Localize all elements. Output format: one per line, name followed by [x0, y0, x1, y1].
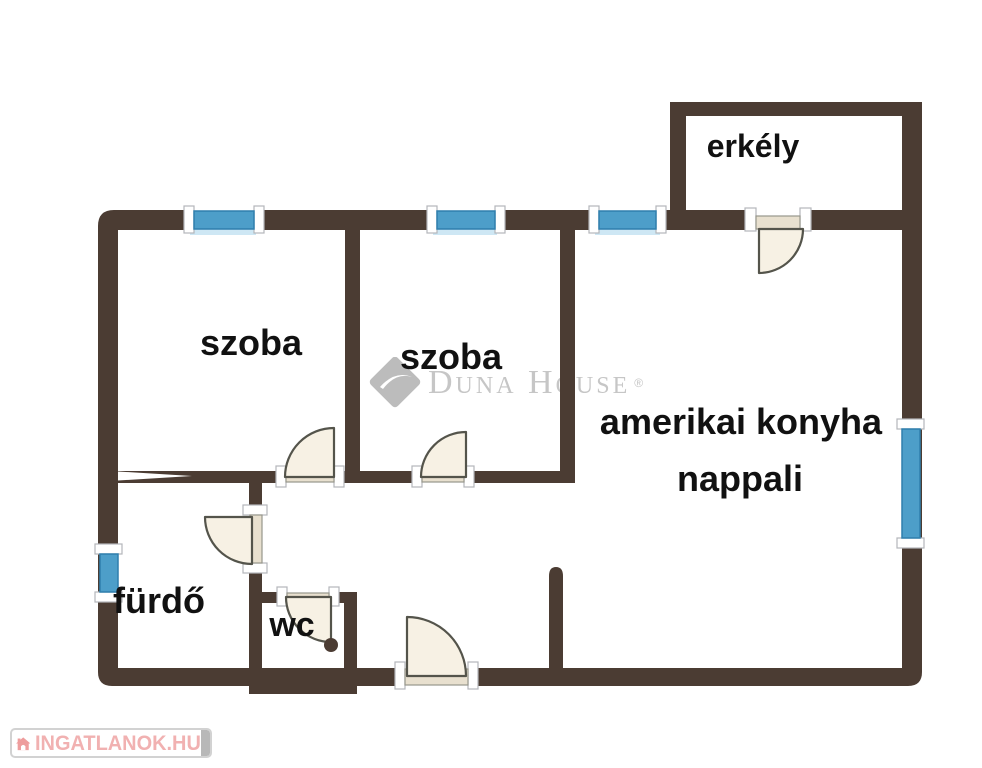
door-room1 [276, 428, 344, 487]
window-living-top [589, 206, 666, 235]
room-label-living-line2: nappali [677, 461, 803, 497]
room-label-room2: szoba [400, 339, 502, 375]
room-label-toilet: wc [269, 608, 314, 642]
room-label-bathroom: fürdő [113, 583, 205, 619]
door-bathroom [205, 505, 267, 573]
floor-plan-image: Duna House® [0, 0, 982, 768]
room-label-balcony: erkély [707, 130, 800, 162]
window-living-right [897, 419, 924, 548]
window-room2-top [427, 206, 505, 235]
badge-right-tab [201, 730, 210, 756]
ingatlanok-logo: INGATLANOK.HU [10, 728, 212, 758]
floor-plan-drawing [0, 0, 982, 768]
room-label-living-line1: amerikai konyha [600, 404, 882, 440]
site-badge-text: INGATLANOK.HU [35, 733, 201, 754]
house-icon [16, 732, 30, 755]
door-entrance [395, 617, 478, 689]
window-room1-top [184, 206, 264, 235]
room-label-room1: szoba [200, 325, 302, 361]
door-room2 [412, 432, 474, 487]
door-handle-dot [324, 638, 338, 652]
exterior-walls [98, 102, 922, 694]
door-balcony [745, 208, 811, 273]
